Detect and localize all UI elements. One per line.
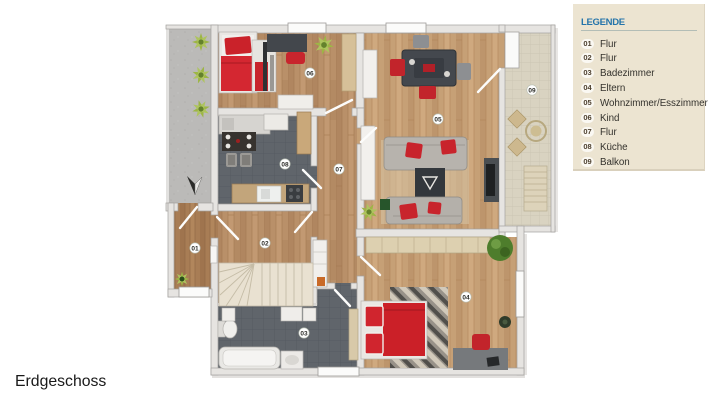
svg-text:09: 09 [528, 88, 536, 95]
svg-text:04: 04 [462, 295, 470, 302]
svg-text:07: 07 [335, 167, 343, 174]
svg-text:05: 05 [434, 117, 442, 124]
svg-text:03: 03 [300, 331, 308, 338]
svg-text:08: 08 [281, 162, 289, 169]
svg-text:02: 02 [261, 241, 269, 248]
svg-text:06: 06 [306, 71, 314, 78]
svg-text:01: 01 [191, 246, 199, 253]
